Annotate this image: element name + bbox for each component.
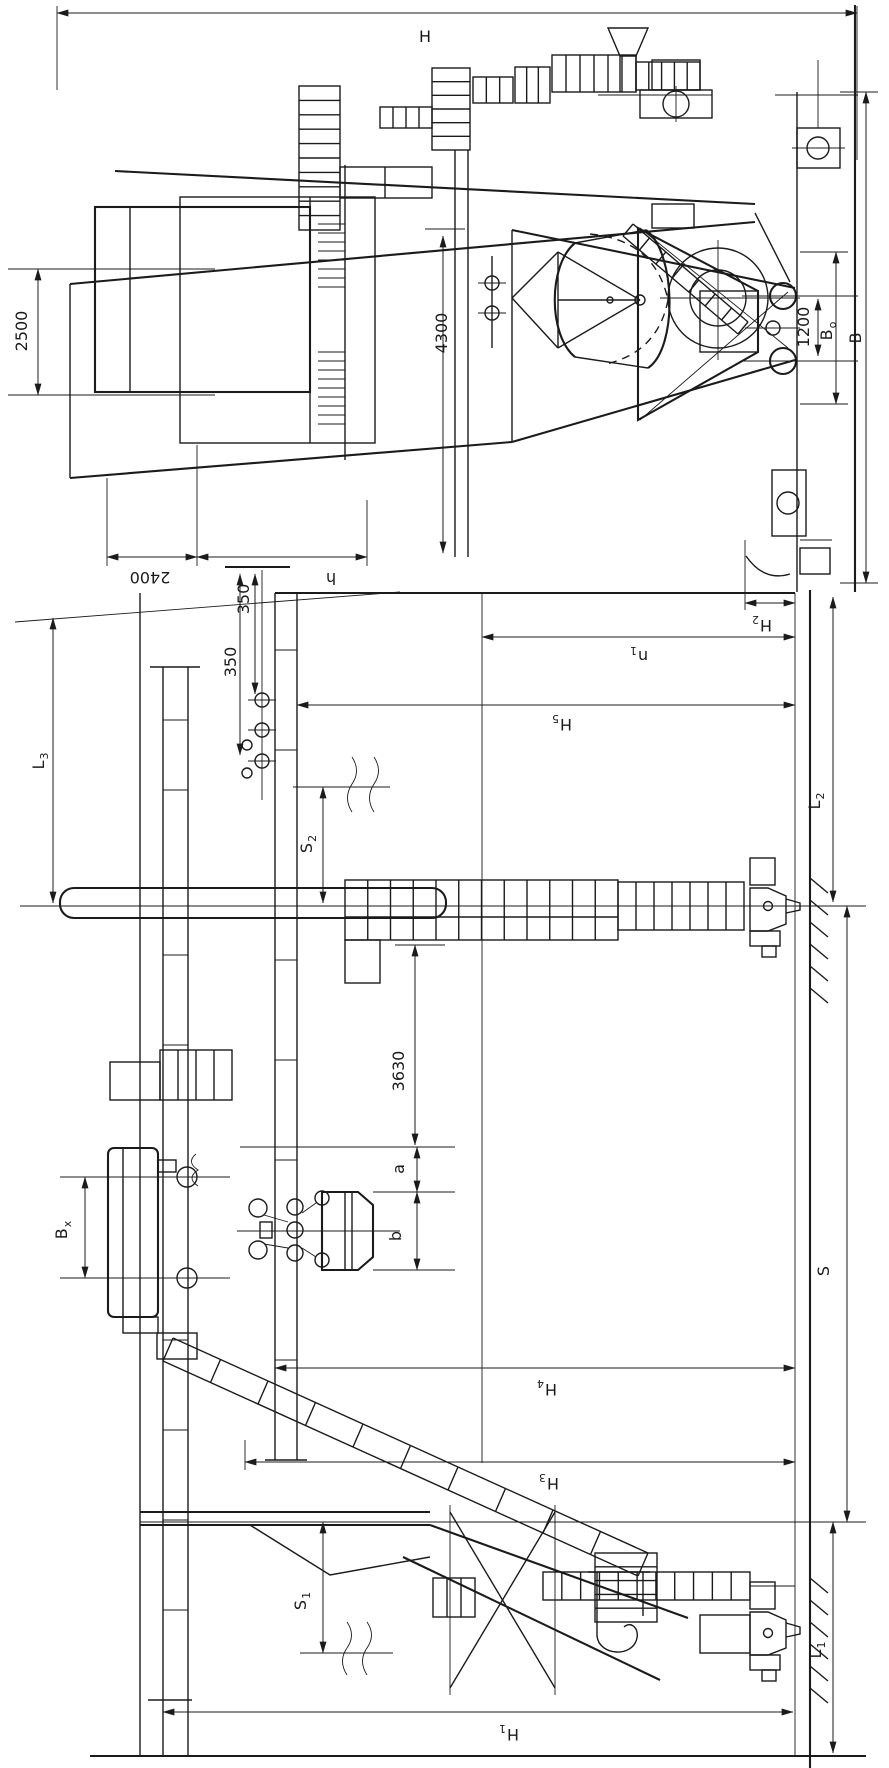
machinery-house-end-view (180, 165, 432, 460)
boom (20, 888, 866, 918)
dim-label-bx: Bx (52, 1220, 74, 1239)
dim-label-l2: L2 (805, 793, 827, 810)
vent-grille-upper (318, 224, 345, 287)
dim-H3 (245, 1440, 795, 1470)
dim-label-l3: L3 (29, 753, 51, 770)
dim-label-n1: n1 (630, 644, 648, 666)
lattice-walkway-5 (515, 67, 550, 103)
dim-label-s2: S2 (297, 835, 319, 853)
dim-label-350: 350 (234, 584, 253, 615)
dim-label-350: 350 (221, 647, 240, 678)
lower-buffer (746, 470, 832, 576)
dim-label-s1: S1 (291, 1592, 313, 1610)
end-elevation-view (8, 5, 878, 705)
ground-line (795, 590, 828, 1768)
dim-label-b: B (846, 333, 865, 344)
counterweight-box (95, 207, 310, 392)
break-symbol-lower (300, 1622, 393, 1675)
dim-a (240, 1147, 455, 1192)
cable-funnel (598, 28, 712, 122)
vent-grille-lower (318, 352, 345, 424)
lattice-walkway-7 (636, 62, 700, 90)
dim-label-b: b (386, 1231, 405, 1241)
dim-label-bo: Bo (817, 321, 839, 340)
crane-technical-drawing: Portal grab crane - general arrangement … (0, 0, 889, 1768)
dim-label-a: a (389, 1164, 408, 1174)
portal-column (140, 593, 200, 1756)
rail-bogie-lower (700, 1582, 800, 1681)
drawing-page: Portal grab crane - general arrangement … (0, 0, 889, 1768)
dim-label-h: h (326, 569, 336, 588)
dim-label-2500: 2500 (12, 311, 31, 352)
dim-4300 (425, 229, 465, 553)
counterjib-block (110, 1062, 160, 1100)
dim-label-h3: H3 (539, 1471, 559, 1493)
dim-3630 (395, 945, 445, 1145)
dim-label-1200: 1200 (794, 307, 813, 348)
rail-bogie-upper (750, 858, 800, 957)
staircase (163, 1338, 648, 1576)
slewing-column (455, 150, 468, 557)
grab-side-view (237, 1191, 400, 1270)
lattice-walkway-3 (432, 68, 470, 150)
rail-clamp (775, 60, 858, 168)
dim-2500 (8, 269, 215, 395)
dim-Bx (60, 1177, 230, 1278)
crane-hook (588, 1572, 650, 1652)
dim-label-h5: H5 (552, 712, 572, 734)
dim-label-s: S (814, 1266, 833, 1276)
projection-line (15, 592, 400, 622)
dim-label-4300: 4300 (432, 313, 451, 354)
dim-label-2400: 2400 (130, 568, 171, 587)
break-symbol-upper (293, 757, 390, 812)
lattice-walkway-6 (552, 55, 636, 92)
dim-label-3630: 3630 (389, 1051, 408, 1092)
ground-hatching-upper (810, 878, 828, 1003)
lattice-walkway-4 (473, 77, 513, 103)
dim-label-h1: H1 (499, 1722, 519, 1744)
tower-mast (265, 593, 307, 1460)
lattice-walkway-1 (299, 86, 340, 230)
boom-heel-foot (345, 940, 380, 983)
dim-label-h2: H2 (752, 613, 772, 635)
counterjib-lattice (160, 1050, 232, 1100)
diagonal-lattice-strut (623, 224, 748, 334)
lattice-walkway-2 (380, 107, 432, 128)
bottom-small-lattice (433, 1578, 475, 1617)
dim-label-h4: H4 (537, 1377, 557, 1399)
dim-label-h: H (419, 27, 431, 46)
ground-hatching-lower (810, 1578, 828, 1703)
dim-2400-h (107, 445, 367, 566)
side-elevation-view (15, 567, 866, 1768)
